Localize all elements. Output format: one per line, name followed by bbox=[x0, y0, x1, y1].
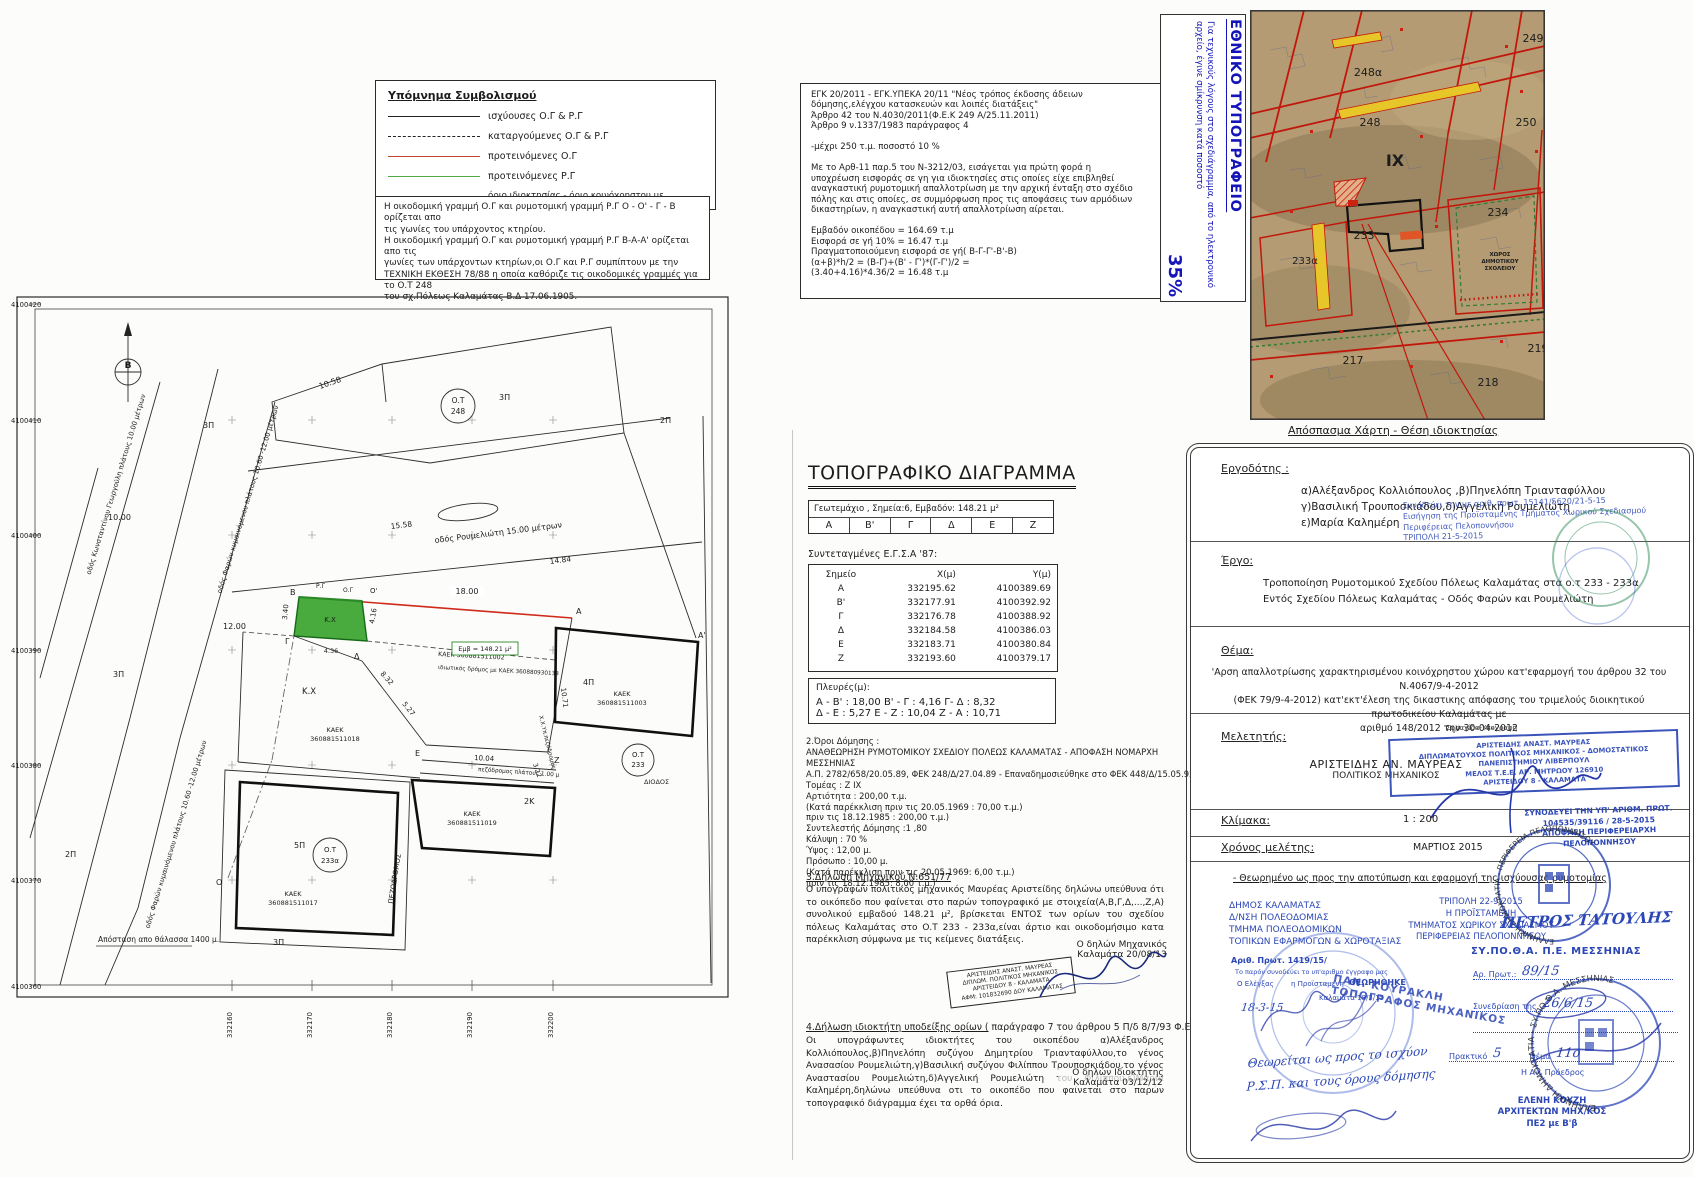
sea-distance: Απόσταση απο θάλασσα 1400 μ. bbox=[96, 935, 219, 946]
sypotha-protocol-label: Αρ. Πρωτ.: bbox=[1473, 970, 1522, 979]
cell-G: Γ bbox=[891, 518, 932, 533]
map-label-218: 218 bbox=[1478, 376, 1499, 389]
dim-4-16: 4.16 bbox=[368, 607, 379, 624]
print-office-note: ΕΘΝΙΚΟ ΤΥΠΟΓΡΑΦΕΙΟ Για τεχνικούς λόγους … bbox=[1160, 14, 1246, 302]
building-lines-note: Η οικοδομική γραμμή Ο.Γ και ρυμοτομική γ… bbox=[375, 196, 710, 280]
y-tick: 4100410 bbox=[11, 417, 41, 425]
sides-line1: Α - Β' : 18,00 Β' - Γ : 4,16 Γ- Δ : 8,32 bbox=[816, 697, 1048, 708]
y-tick: 4100420 bbox=[11, 301, 41, 309]
kaek-018: 360881511018 bbox=[310, 735, 360, 743]
parcel-sides: Δ Ε Ζ 8.32 5.27 10.04 10.71 3.22 ΚΑΕΚ 36… bbox=[243, 618, 572, 778]
dim-10-00: 10.00 bbox=[108, 513, 131, 522]
ot-233a: 233α bbox=[321, 857, 339, 865]
north-arrow: Β bbox=[115, 322, 141, 402]
kaek-003: 360881511003 bbox=[597, 699, 647, 707]
dim-12-00: 12.00 bbox=[223, 622, 246, 631]
point-B: Β bbox=[290, 588, 296, 597]
area-box: Εμβ = 148.21 μ² bbox=[458, 645, 512, 653]
subject-label: Θέμα: bbox=[1221, 644, 1254, 657]
y-tick: 4100400 bbox=[11, 532, 41, 540]
legend-item: ισχύουσες Ο.Γ & Ρ.Γ bbox=[388, 111, 703, 122]
ot-word: Ο.Τ bbox=[324, 846, 337, 854]
coord-row: Ε332183.714100380.84 bbox=[811, 639, 1055, 653]
kaek-word: ΚΑΕΚ bbox=[463, 810, 481, 818]
client-label: Εργοδότης : bbox=[1221, 462, 1289, 475]
parcel-table: Γεωτεμάχιο , Σημεία:6, Εμβαδόν: 148.21 μ… bbox=[808, 500, 1054, 534]
survey-plan: 4100420 4100410 4100400 4100390 4100380 … bbox=[10, 290, 735, 1045]
parcel-info: Γεωτεμάχιο , Σημεία:6, Εμβαδόν: 148.21 μ… bbox=[809, 501, 1053, 518]
print-office-title: ΕΘΝΙΚΟ ΤΥΠΟΓΡΑΦΕΙΟ bbox=[1227, 19, 1243, 212]
topo-title: ΤΟΠΟΓΡΑΦΙΚΟ ΔΙΑΓΡΑΜΜΑ bbox=[808, 462, 1076, 489]
coord-row: Ζ332193.604100379.17 bbox=[811, 653, 1055, 667]
dim-10-58: 10.58 bbox=[318, 375, 343, 391]
owner-sign-line1: Ο δηλών Ιδιοκτήτης bbox=[1058, 1068, 1178, 1078]
kx-area: Κ.Χ bbox=[302, 687, 316, 697]
dim-8-32: 8.32 bbox=[379, 670, 395, 687]
map-caption: Απόσπασμα Χάρτη - Θέση ιδιοκτησίας bbox=[1288, 424, 1498, 437]
floors-5p: 5Π bbox=[294, 841, 305, 850]
line-dashed-black-swatch bbox=[388, 136, 480, 137]
sides-title: Πλευρές(μ): bbox=[816, 683, 1048, 693]
map-label-219: 219 bbox=[1528, 342, 1546, 355]
school-line3: ΣΧΟΛΕΙΟΥ bbox=[1485, 266, 1516, 272]
scanned-topographic-sheet: Υπόμνημα Συμβολισμού ισχύουσες Ο.Γ & Ρ.Γ… bbox=[0, 0, 1694, 1177]
map-label-248: 248 bbox=[1360, 116, 1381, 129]
kx-in-parcel: Κ.Χ bbox=[324, 616, 336, 624]
boundary-o-line2 bbox=[272, 636, 294, 760]
point-A-prime: Α' bbox=[698, 631, 706, 640]
map-label-234: 234 bbox=[1488, 206, 1509, 219]
pez-small-label: πεζόδρομος πλάτους 1.00 μ bbox=[478, 766, 560, 779]
coords-heading: Συντεταγμένες Ε.Γ.Σ.Α '87: bbox=[808, 549, 937, 560]
col-y: Υ(μ) bbox=[966, 569, 1055, 583]
cadastral-map-inset: 249 248α 248 250 234 233 233α 217 218 21… bbox=[1250, 10, 1545, 420]
pezodromos-label: ΠΕΖΟΔΡΟΜΟΣ bbox=[387, 853, 403, 904]
designer-label: Μελετητής: bbox=[1221, 730, 1286, 743]
legend-item: καταργούμενες Ο.Γ & Ρ.Γ bbox=[388, 131, 703, 142]
building-terms: 2.Όροι Δόμησης : ΑΝΑΘΕΩΡΗΣΗ ΡΥΜΟΤΟΜΙΚΟΥ … bbox=[806, 736, 1198, 889]
ot-248: 248 bbox=[451, 407, 466, 416]
dim-15-58: 15.58 bbox=[390, 519, 413, 531]
point-RG: Ρ.Γ bbox=[316, 583, 326, 590]
scale-value: 1 : 200 bbox=[1403, 814, 1438, 825]
coords-table: Σημείο Χ(μ) Υ(μ) Α332195.624100389.69 Β'… bbox=[808, 564, 1058, 672]
x-tick: 332170 bbox=[306, 1012, 314, 1038]
regulation-egk-box: ΕΓΚ 20/2011 - ΕΓΚ.ΥΠΕΚΑ 20/11 "Νέος τρόπ… bbox=[800, 83, 1164, 299]
street-roumelioti-label: οδός Ρουμελιώτη 15.00 μέτρων bbox=[434, 519, 563, 545]
subject-value: 'Αρση απαλλοτρίωσης χαρακτηρισμένου κοιν… bbox=[1205, 666, 1673, 737]
floors-2k: 2Κ bbox=[524, 797, 535, 806]
coords-header: Σημείο Χ(μ) Υ(μ) bbox=[811, 569, 1055, 583]
kaek-019: 360881511019 bbox=[447, 819, 497, 827]
private-road-label: ιδιωτικός δρόμος με ΚΑΕΚ 360880930133 bbox=[438, 664, 559, 677]
kaek-word: ΚΑΕΚ bbox=[284, 890, 302, 898]
sypotha-title: ΣΥ.ΠΟ.Θ.Α. Π.Ε. ΜΕΣΣΗΝΙΑΣ bbox=[1471, 946, 1641, 957]
floors-4p: 4Π bbox=[583, 678, 594, 687]
map-label-248a: 248α bbox=[1354, 66, 1382, 79]
coord-row: Γ332176.784100388.92 bbox=[811, 611, 1055, 625]
legend-item-label: προτεινόμενες Ο.Γ bbox=[488, 151, 577, 162]
legend-item-label: ισχύουσες Ο.Γ & Ρ.Γ bbox=[488, 111, 583, 122]
owner-sign-block: Ο δηλών Ιδιοκτήτης Καλαμάτα 03/12/12 bbox=[1058, 1068, 1178, 1088]
north-letter: Β bbox=[125, 361, 132, 371]
col-point: Σημείο bbox=[811, 569, 871, 583]
point-D: Δ bbox=[354, 652, 360, 661]
sheet-fold-line bbox=[792, 430, 793, 1160]
col-x: Χ(μ) bbox=[871, 569, 966, 583]
legend-title: Υπόμνημα Συμβολισμού bbox=[388, 89, 703, 102]
floors-2p: 2Π bbox=[660, 416, 671, 425]
x-tick: 332200 bbox=[547, 1012, 555, 1038]
coord-row: Α332195.624100389.69 bbox=[811, 583, 1055, 597]
dim-18-00: 18.00 bbox=[456, 587, 479, 596]
street-georgouli-label: οδός Κωνσταντίνου Γεωργούλη πλάτους 10.0… bbox=[85, 393, 148, 576]
parcel-points-row: Α Β' Γ Δ Ε Ζ bbox=[809, 518, 1053, 533]
sides-line2: Δ - Ε : 5,27 Ε - Ζ : 10,04 Ζ - Α : 10,71 bbox=[816, 708, 1048, 719]
sea-distance-label: Απόσταση απο θάλασσα 1400 μ. bbox=[98, 935, 219, 944]
stamp-signature-label: Σφραγίδα-Υπογραφή bbox=[1446, 724, 1517, 732]
approval-form: Εργοδότης : α)Αλέξανδρος Κολλιόπουλος ,β… bbox=[1190, 447, 1690, 1159]
street-faron-label: οδός Φαρών κυμαινόμενου πλάτους 10.60 -1… bbox=[216, 404, 281, 594]
y-tick: 4100370 bbox=[11, 877, 41, 885]
west-streets: οδός Κωνσταντίνου Γεωργούλη πλάτους 10.0… bbox=[30, 369, 281, 985]
decl3-heading: 3.Δήλωση Μηχανικού Ν.651/77 bbox=[806, 872, 951, 883]
cell-B: Β' bbox=[850, 518, 891, 533]
subject-parcel: 18.00 Β Ρ.Γ Ο.Γ Ο' Γ 3.40 4.16 Κ.Χ 4.36 … bbox=[281, 583, 582, 655]
floors-3p: 3Π bbox=[499, 393, 510, 402]
ot-233: 233 bbox=[631, 761, 644, 769]
cell-A: Α bbox=[809, 518, 850, 533]
kaek-word: ΚΑΕΚ bbox=[326, 726, 344, 734]
map-label-233a: 233α bbox=[1292, 256, 1318, 267]
legend-box: Υπόμνημα Συμβολισμού ισχύουσες Ο.Γ & Ρ.Γ… bbox=[375, 80, 716, 210]
legend-item-label: καταργούμενες Ο.Γ & Ρ.Γ bbox=[488, 131, 608, 142]
ot-word: Ο.Τ bbox=[632, 751, 645, 759]
map-label-249: 249 bbox=[1523, 32, 1544, 45]
project-label: Έργο: bbox=[1221, 554, 1253, 567]
x-axis-labels: 332160 332170 332180 332190 332200 bbox=[226, 980, 555, 1038]
cell-D: Δ bbox=[931, 518, 972, 533]
block-248: 10.58 Ο.Τ 248 3Π 2Π 3Π bbox=[203, 327, 671, 463]
point-OG: Ο.Γ bbox=[343, 587, 354, 594]
point-G: Γ bbox=[285, 637, 290, 646]
point-A: Α bbox=[576, 607, 582, 616]
study-date-label: Χρόνος μελέτης: bbox=[1221, 841, 1314, 854]
point-O-prime: Ο' bbox=[370, 587, 378, 595]
y-tick: 4100380 bbox=[11, 762, 41, 770]
cell-Z: Ζ bbox=[1013, 518, 1053, 533]
engineer-signature bbox=[1030, 935, 1170, 1020]
legend-item: προτεινόμενες Ο.Γ bbox=[388, 151, 703, 162]
x-tick: 332160 bbox=[226, 1012, 234, 1038]
divider bbox=[1191, 626, 1689, 627]
x-tick: 332180 bbox=[386, 1012, 394, 1038]
sides-box: Πλευρές(μ): Α - Β' : 18,00 Β' - Γ : 4,16… bbox=[808, 678, 1056, 724]
block-233a: Ο.Τ 233α 5Π ΚΑΕΚ 360881511017 3Π ΠΕΖΟΔΡΟ… bbox=[216, 770, 410, 950]
x-tick: 332190 bbox=[466, 1012, 474, 1038]
map-label-block-ix: ΙΧ bbox=[1386, 151, 1405, 170]
dim-10-71: 10.71 bbox=[559, 687, 569, 708]
street-faron-label-2: οδός Φαρών κυμαινόμενου πλάτους 10.60 -1… bbox=[144, 739, 209, 929]
decl4-heading-underlined: 4.Δήλωση ιδιοκτήτη υποδείξης ορίων ( bbox=[806, 1022, 989, 1033]
dim-14-84: 14.84 bbox=[549, 554, 572, 566]
dim-3-40: 3.40 bbox=[281, 604, 290, 620]
legend-item-label: προτεινόμενες Ρ.Γ bbox=[488, 171, 575, 182]
map-label-217: 217 bbox=[1343, 354, 1364, 367]
point-E: Ε bbox=[415, 749, 420, 758]
map-label-233: 233 bbox=[1354, 229, 1375, 242]
green-round-stamp bbox=[1539, 496, 1659, 626]
minutes-label: Πρακτικό bbox=[1449, 1052, 1493, 1061]
kaek-word: ΚΑΕΚ bbox=[613, 690, 631, 698]
y-axis-labels: 4100420 4100410 4100400 4100390 4100380 … bbox=[11, 301, 41, 991]
handwritten-signature bbox=[1241, 1096, 1401, 1156]
boundary-o-line bbox=[228, 760, 272, 878]
minutes-value: 5 bbox=[1492, 1046, 1502, 1061]
plan-outer-frame bbox=[17, 297, 728, 997]
coord-row: Β'332177.914100392.92 bbox=[811, 597, 1055, 611]
floors-2p: 2Π bbox=[65, 850, 76, 859]
building-kaek-003: Α' 4Π ΚΑΕΚ 360881511003 Ο.Τ 233 ΔΙΟΔΟΣ bbox=[555, 416, 711, 983]
coord-row: Δ332184.584100386.03 bbox=[811, 625, 1055, 639]
floors-3p: 3Π bbox=[113, 670, 124, 679]
line-red-swatch bbox=[388, 156, 480, 157]
kaek-017: 360881511017 bbox=[268, 899, 318, 907]
school-line2: ΔΗΜΟΤΙΚΟΥ bbox=[1482, 259, 1519, 265]
point-O: Ο bbox=[216, 878, 222, 887]
print-office-percent: 35% bbox=[1164, 254, 1185, 297]
building-kaek-019: ΚΑΕΚ 360881511019 2Κ bbox=[412, 780, 555, 856]
cell-E: Ε bbox=[972, 518, 1013, 533]
line-solid-black-swatch bbox=[388, 116, 480, 117]
study-date-value: ΜΑΡΤΙΟΣ 2015 bbox=[1413, 842, 1483, 853]
scale-label: Κλίμακα: bbox=[1221, 814, 1270, 827]
sypotha-round-stamp: ΕΛΛΗΝΙΚΗ ΔΗΜΟΚΡΑΤΙΑ - ΣΥ.ΠΟ.Θ.Α. ΜΕΣΣΗΝΙ… bbox=[1521, 968, 1671, 1118]
map-label-250: 250 bbox=[1516, 116, 1537, 129]
y-tick: 4100360 bbox=[11, 983, 41, 991]
diodos-label: ΔΙΟΔΟΣ bbox=[644, 778, 669, 786]
legend-item: προτεινόμενες Ρ.Γ bbox=[388, 171, 703, 182]
floors-3p: 3Π bbox=[273, 938, 284, 947]
school-line1: ΧΩΡΟΣ bbox=[1490, 252, 1511, 258]
reviewer-signatures bbox=[1251, 976, 1391, 1046]
y-tick: 4100390 bbox=[11, 647, 41, 655]
dim-10-04: 10.04 bbox=[474, 754, 495, 763]
owner-sign-line2: Καλαμάτα 03/12/12 bbox=[1058, 1078, 1178, 1088]
print-office-body: Για τεχνικούς λόγους στο σχεδιάγραμμα, α… bbox=[1181, 21, 1215, 293]
ot-word: Ο.Τ bbox=[452, 396, 465, 405]
line-green-swatch bbox=[388, 176, 480, 177]
